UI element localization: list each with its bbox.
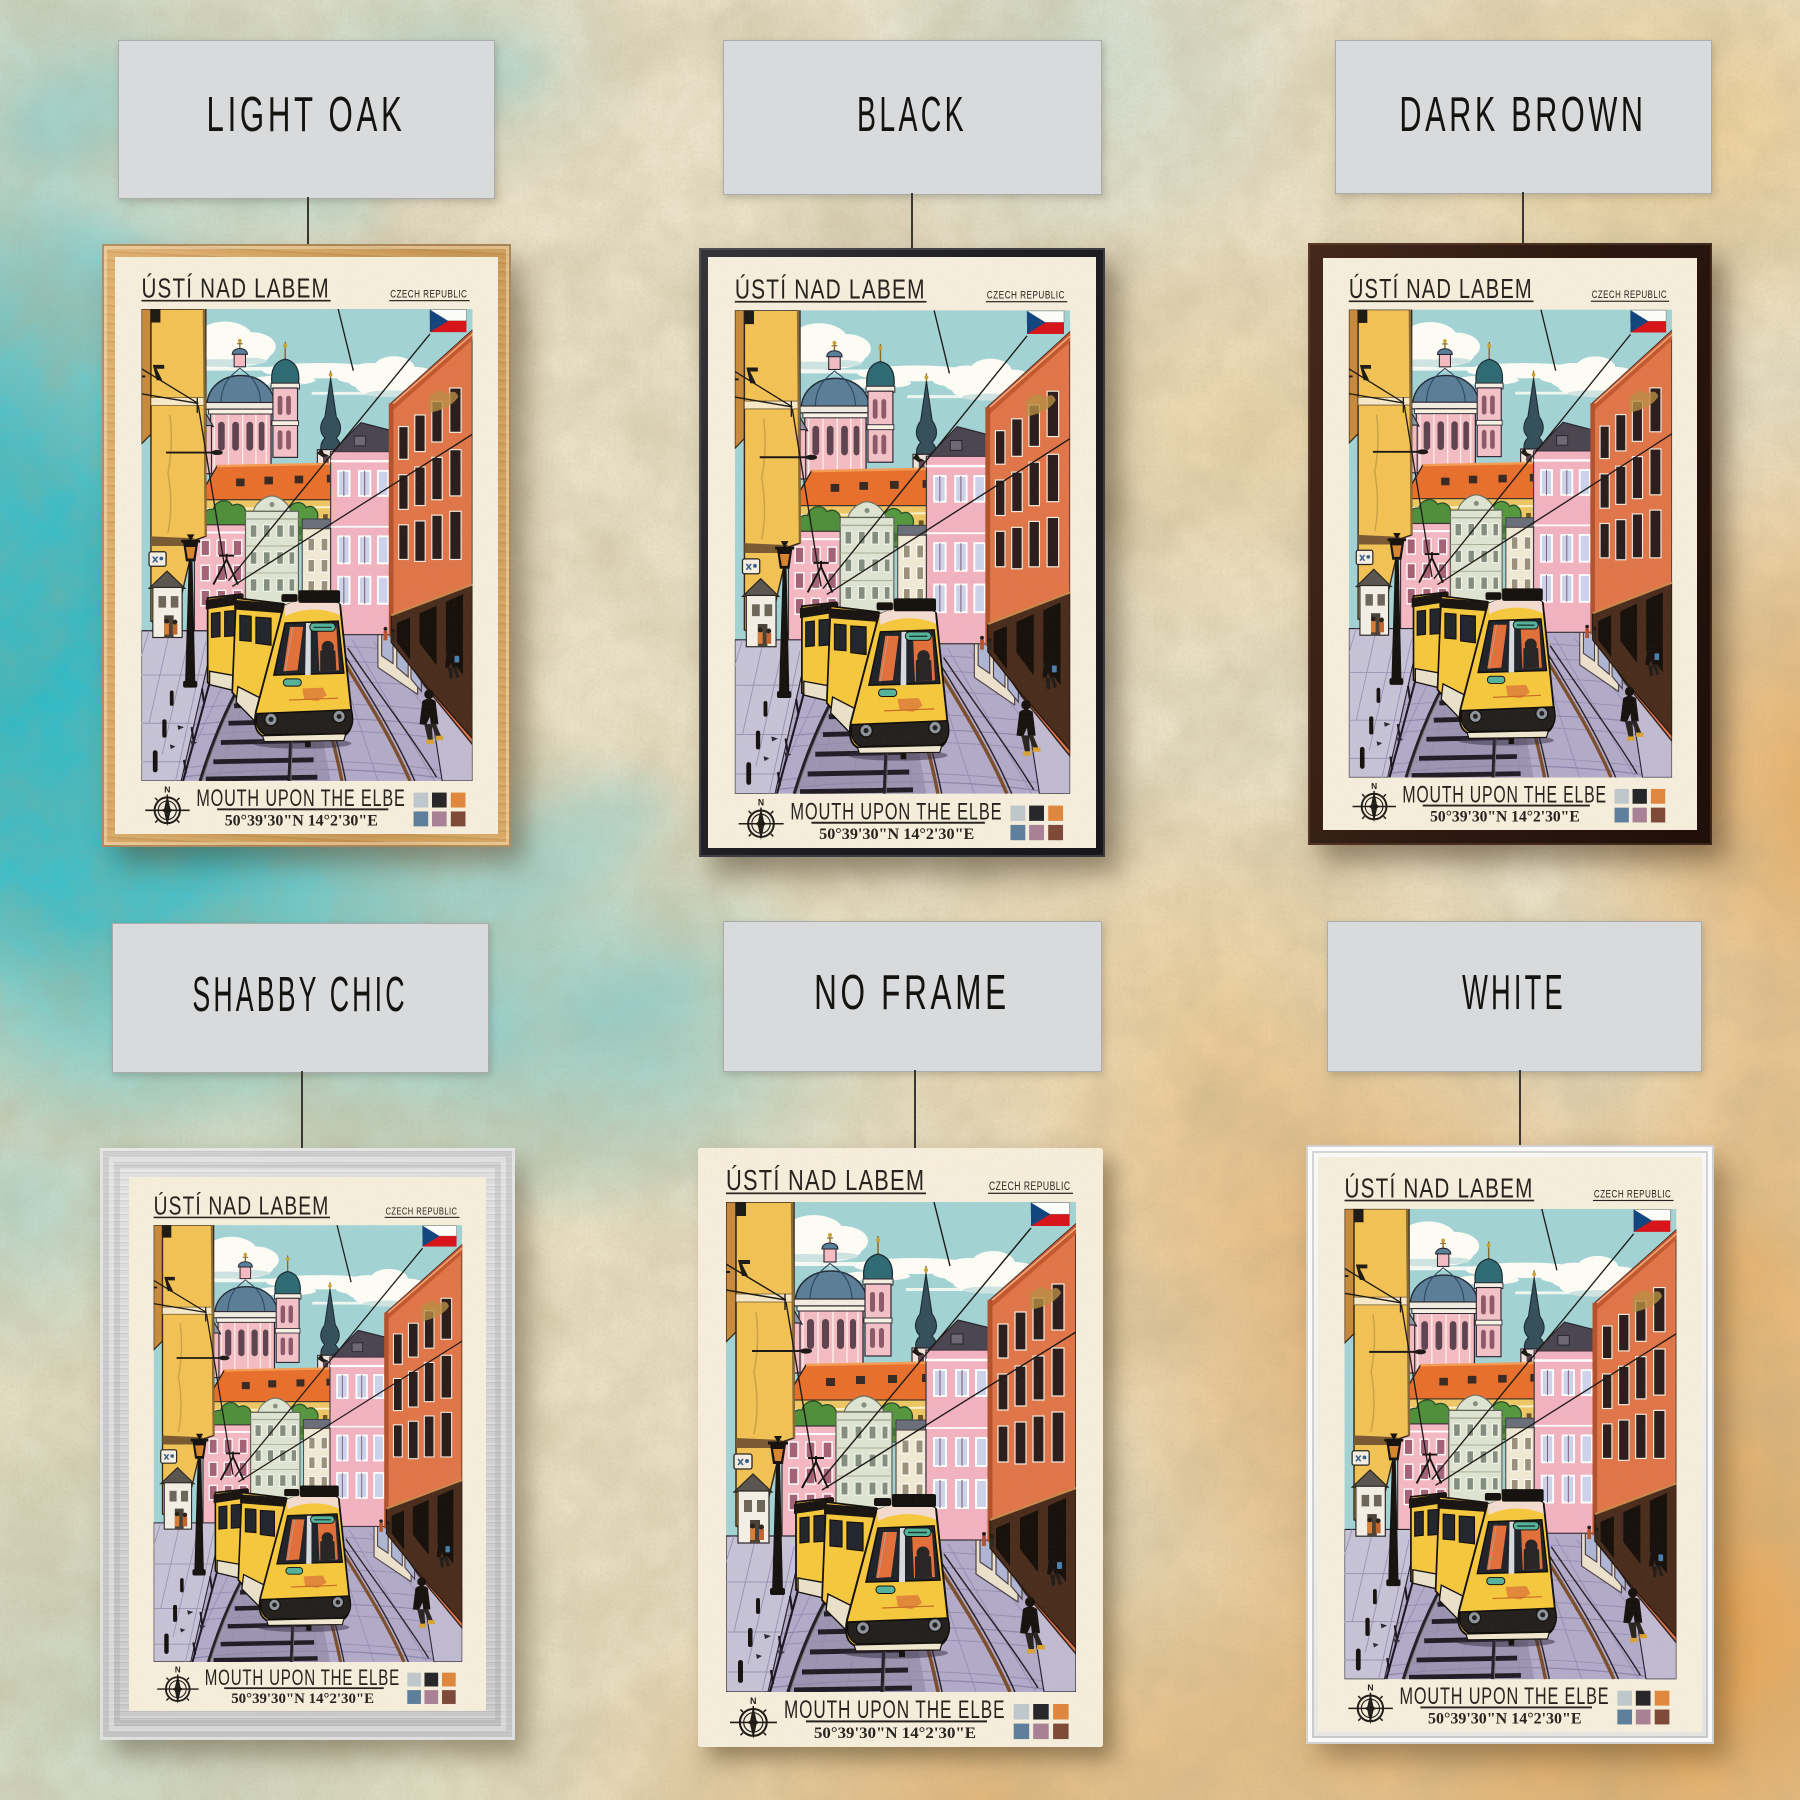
svg-text:WHITE: WHITE bbox=[1462, 965, 1566, 1020]
svg-text:LIGHT OAK: LIGHT OAK bbox=[207, 87, 406, 142]
svg-text:SHABBY CHIC: SHABBY CHIC bbox=[192, 967, 407, 1022]
svg-text:DARK BROWN: DARK BROWN bbox=[1399, 87, 1646, 142]
svg-text:BLACK: BLACK bbox=[857, 87, 967, 142]
svg-text:NO FRAME: NO FRAME bbox=[814, 965, 1010, 1020]
